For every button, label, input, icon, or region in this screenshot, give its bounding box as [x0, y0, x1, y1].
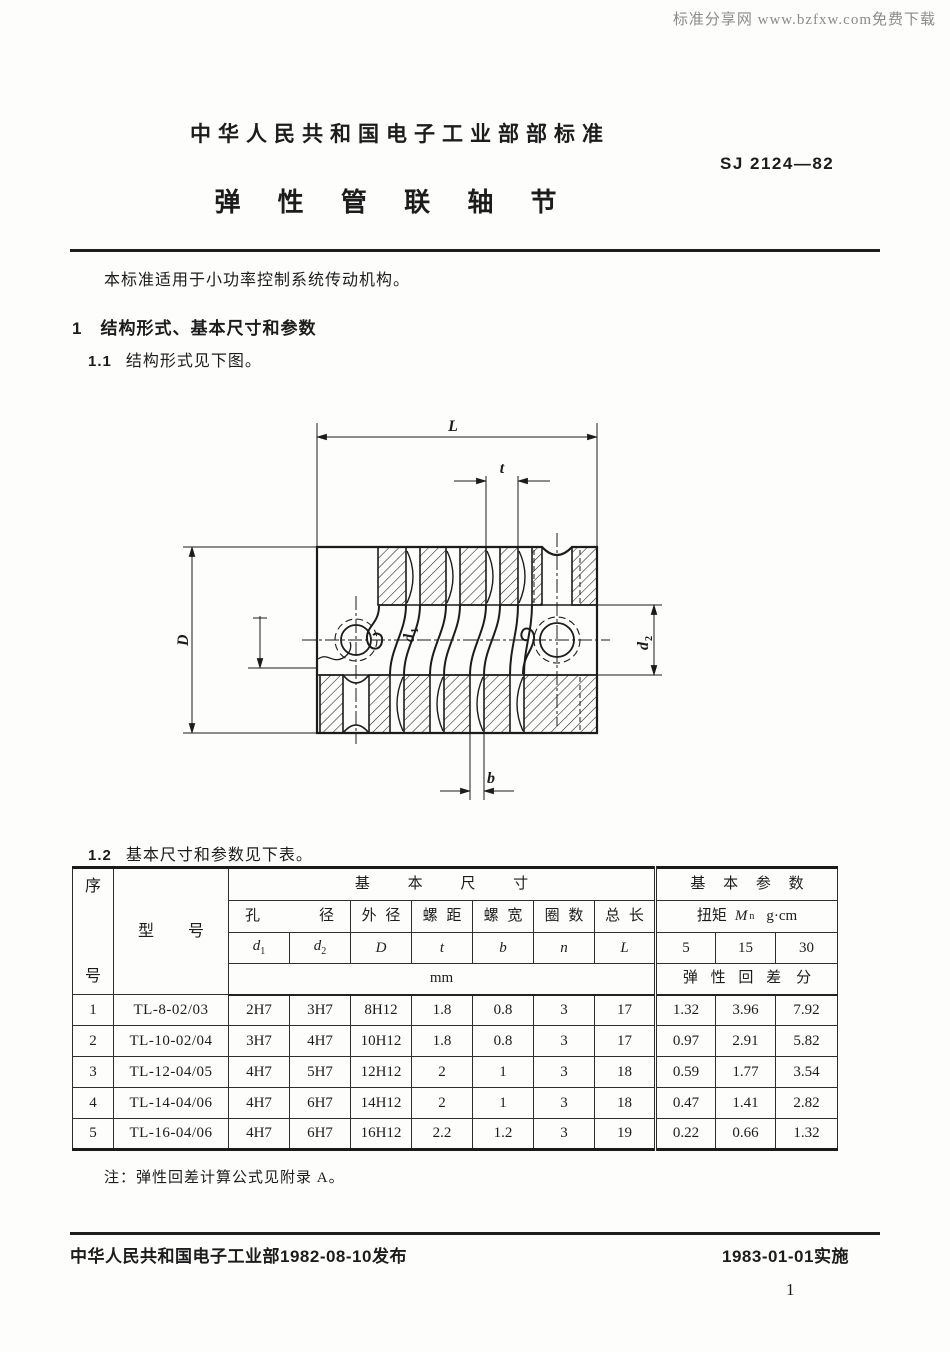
ministry-standard-line: 中华人民共和国电子工业部部标准 [150, 118, 650, 148]
clause-1-1-number: 1.1 [88, 353, 112, 370]
table-row: 5TL-16-04/06 4H76H716H12 2.21.2319 0.220… [73, 1119, 838, 1150]
label-d1-sub: 1 [410, 628, 421, 633]
label-b: b [487, 770, 495, 787]
dim-L [317, 423, 597, 547]
hatched-blocks-bottom [320, 675, 597, 733]
header-turns: 圈 数 [534, 901, 595, 933]
header-torque-30: 30 [776, 933, 838, 964]
header-screw-width: 螺 宽 [473, 901, 534, 933]
section-1-heading: 1 结构形式、基本尺寸和参数 [72, 314, 316, 339]
header-basic-dimensions: 基 本 尺 寸 [229, 868, 656, 901]
page-number: 1 [786, 1280, 795, 1300]
header-torque-5: 5 [656, 933, 716, 964]
dimensions-parameters-table: 序 号 型 号 基 本 尺 寸 基 本 参 数 孔 径 外 径 螺 距 螺 宽 … [72, 866, 838, 1151]
header-torque: 扭矩Mng·cm [656, 901, 838, 933]
clause-1-1-text: 结构形式见下图。 [126, 353, 262, 370]
table-row: 3TL-12-04/05 4H75H712H12 21318 0.591.773… [73, 1057, 838, 1088]
header-sym-d2: d2 [290, 933, 351, 964]
table-row: 2TL-10-02/04 3H74H710H12 1.80.8317 0.972… [73, 1026, 838, 1057]
footer-rule [70, 1232, 880, 1235]
header-model: 型 号 [114, 868, 229, 995]
clause-1-2-text: 基本尺寸和参数见下表。 [126, 847, 313, 864]
label-d1: d [401, 633, 418, 642]
coupling-section-drawing: L t D d 1 d 2 b [160, 410, 740, 810]
dim-d1 [248, 616, 317, 668]
header-seq: 序 号 [73, 868, 114, 995]
watermark: 标准分享网 www.bzfxw.com免费下载 [673, 8, 936, 29]
label-t: t [500, 460, 505, 477]
header-sym-L: L [595, 933, 656, 964]
header-sym-n: n [534, 933, 595, 964]
clause-1-1: 1.1结构形式见下图。 [88, 347, 262, 371]
header-unit-mm: mm [229, 964, 656, 995]
label-d2: d [635, 641, 652, 650]
header-seq-top: 序 [73, 879, 113, 895]
clause-1-2: 1.2基本尺寸和参数见下表。 [88, 841, 313, 865]
scope-paragraph: 本标准适用于小功率控制系统传动机构。 [104, 266, 410, 290]
hatched-blocks-top [378, 547, 597, 605]
document-title: 弹 性 管 联 轴 节 [150, 182, 630, 219]
header-basic-parameters: 基 本 参 数 [656, 868, 838, 901]
header-sym-b: b [473, 933, 534, 964]
header-pitch: 螺 距 [412, 901, 473, 933]
dim-D [183, 547, 317, 733]
table-note: 注：弹性回差计算公式见附录 A。 [104, 1166, 345, 1187]
header-backlash: 弹 性 回 差 分 [656, 964, 838, 995]
header-seq-bottom: 号 [73, 969, 113, 985]
header-sym-d1: d1 [229, 933, 290, 964]
table-row: 4TL-14-04/06 4H76H714H12 21318 0.471.412… [73, 1088, 838, 1119]
header-od: 外 径 [351, 901, 412, 933]
table-row: 1TL-8-02/03 2H73H78H12 1.80.8317 1.323.9… [73, 995, 838, 1026]
header-torque-15: 15 [716, 933, 776, 964]
header-sym-D: D [351, 933, 412, 964]
dim-t [454, 476, 550, 547]
label-D: D [175, 634, 192, 647]
header-bore: 孔 径 [229, 901, 351, 933]
footer-effective: 1983-01-01实施 [722, 1242, 849, 1267]
header-length: 总 长 [595, 901, 656, 933]
footer-issued: 中华人民共和国电子工业部1982-08-10发布 [70, 1242, 407, 1267]
dim-b [440, 733, 514, 800]
top-rule [70, 249, 880, 252]
label-d2-sub: 2 [644, 636, 655, 641]
header-sym-t: t [412, 933, 473, 964]
document-page: 标准分享网 www.bzfxw.com免费下载 中华人民共和国电子工业部部标准 … [0, 0, 950, 1352]
label-L: L [447, 418, 458, 435]
clause-1-2-number: 1.2 [88, 847, 112, 864]
standard-number: SJ 2124—82 [720, 154, 834, 174]
